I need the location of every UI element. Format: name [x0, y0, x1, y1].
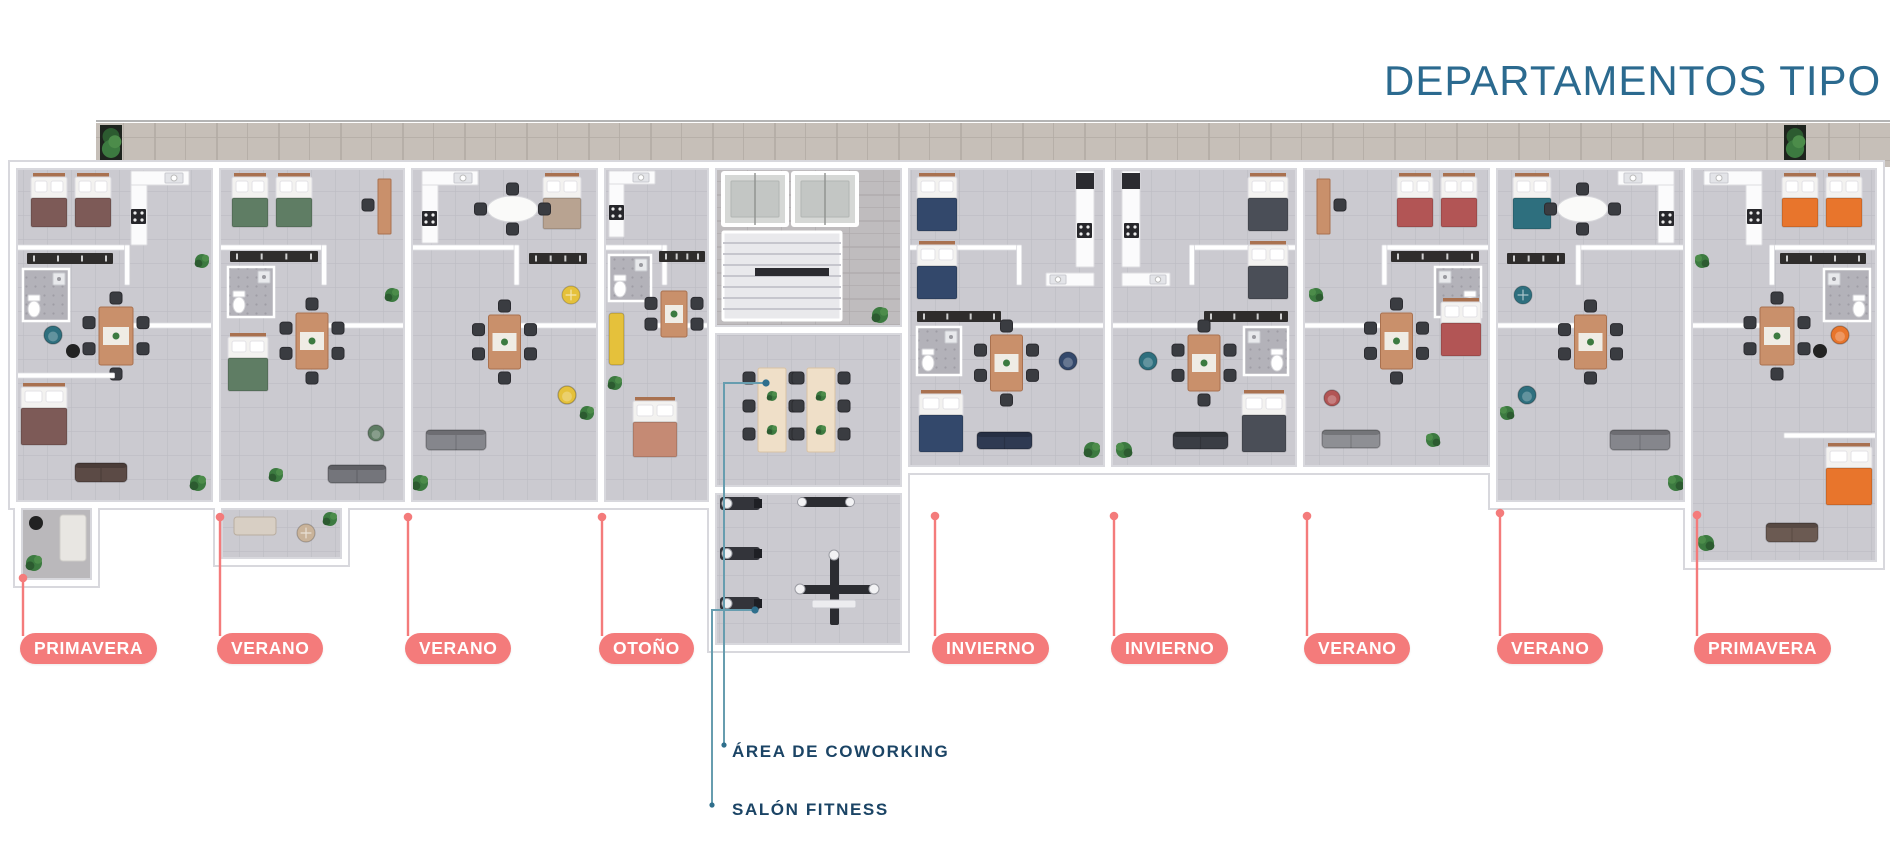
coworking-label: ÁREA DE COWORKING — [732, 742, 949, 762]
fitness-label: SALÓN FITNESS — [732, 800, 889, 820]
unit-leader-invierno — [1110, 512, 1119, 636]
unit-leader-verano — [404, 513, 413, 636]
unit-pill-otoño: OTOÑO — [599, 633, 694, 664]
unit-pill-invierno: INVIERNO — [1111, 633, 1228, 664]
floor-plan — [0, 0, 1900, 850]
unit-pill-primavera: PRIMAVERA — [1694, 633, 1831, 664]
page-title: DEPARTAMENTOS TIPO — [1384, 57, 1881, 105]
unit-leader-invierno — [931, 512, 940, 636]
floor-plan-poster: DEPARTAMENTOS TIPO ÁREA DE COWORKING SAL… — [0, 0, 1900, 850]
unit-leader-verano — [1496, 509, 1505, 636]
unit-pill-verano: VERANO — [217, 633, 323, 664]
unit-pill-verano: VERANO — [405, 633, 511, 664]
unit-pill-primavera: PRIMAVERA — [20, 633, 157, 664]
unit-pill-verano: VERANO — [1497, 633, 1603, 664]
unit-pill-verano: VERANO — [1304, 633, 1410, 664]
unit-leader-verano — [1303, 512, 1312, 636]
unit-leader-otoño — [598, 513, 607, 636]
unit-pill-invierno: INVIERNO — [932, 633, 1049, 664]
